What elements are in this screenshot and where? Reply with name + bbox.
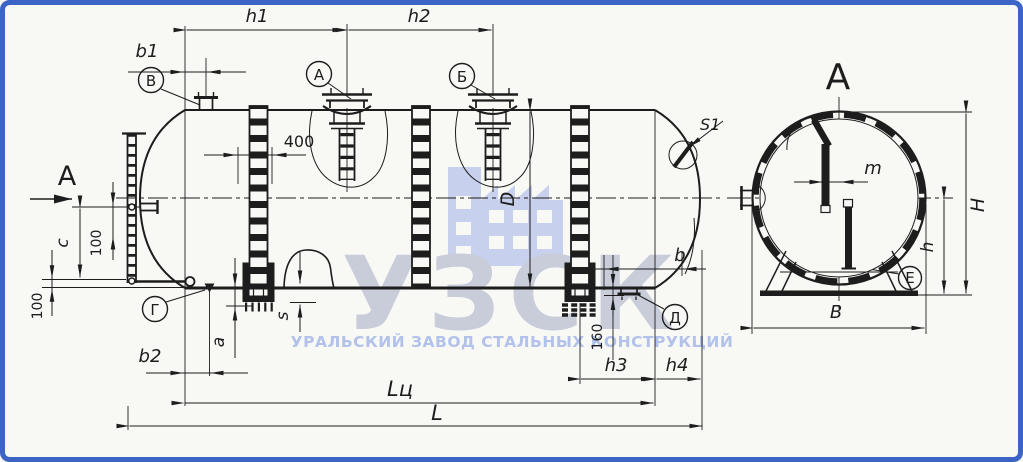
dim-label-H: H xyxy=(967,198,989,212)
dim-label-D: D xyxy=(497,192,519,207)
callout-e-label: Е xyxy=(905,269,914,287)
band-3 xyxy=(571,106,589,288)
dim-label-100-side: 100 xyxy=(89,230,105,257)
dim-label-L: L xyxy=(431,401,443,425)
dim-label-s: s xyxy=(273,311,293,320)
dim-label-Lc: Lц xyxy=(387,377,413,401)
dim-label-400: 400 xyxy=(284,132,315,151)
section-view-label: А xyxy=(58,161,77,192)
dim-label-h2: h2 xyxy=(408,6,431,27)
dim-label-b1: b1 xyxy=(136,41,159,62)
dim-label-a: a xyxy=(209,337,229,347)
dim-label-160: 160 xyxy=(590,324,606,351)
dim-label-h3: h3 xyxy=(605,355,628,376)
dim-label-b: b xyxy=(674,245,685,266)
callout-d-label: Д xyxy=(669,309,681,327)
end-view-title: А xyxy=(826,57,851,98)
end-view-inner-shell xyxy=(760,119,918,277)
dim-label-h1: h1 xyxy=(246,6,269,27)
callout-b-label: Б xyxy=(457,68,467,86)
dim-label-h: h xyxy=(918,242,938,253)
dim-label-100-base: 100 xyxy=(30,293,46,320)
drawing-page: УЗСК УРАЛЬСКИЙ ЗАВОД СТАЛЬНЫХ КОНСТРУКЦИ… xyxy=(0,0,1023,462)
dim-label-s1: S1 xyxy=(700,115,720,134)
dim-label-h4: h4 xyxy=(666,355,689,376)
band-1 xyxy=(250,106,268,288)
dim-label-B: B xyxy=(830,302,842,323)
dim-label-m: m xyxy=(864,158,882,179)
band-2 xyxy=(412,106,430,288)
dim-label-b2: b2 xyxy=(139,346,162,367)
callout-a-label: А xyxy=(314,66,325,84)
watermark-tagline: УРАЛЬСКИЙ ЗАВОД СТАЛЬНЫХ КОНСТРУКЦИЙ xyxy=(291,332,734,351)
callout-g-label: Г xyxy=(150,301,159,319)
tank-technical-drawing: УЗСК УРАЛЬСКИЙ ЗАВОД СТАЛЬНЫХ КОНСТРУКЦИ… xyxy=(0,0,1023,462)
callout-v-label: В xyxy=(146,72,156,90)
dim-label-c: c xyxy=(53,238,73,248)
